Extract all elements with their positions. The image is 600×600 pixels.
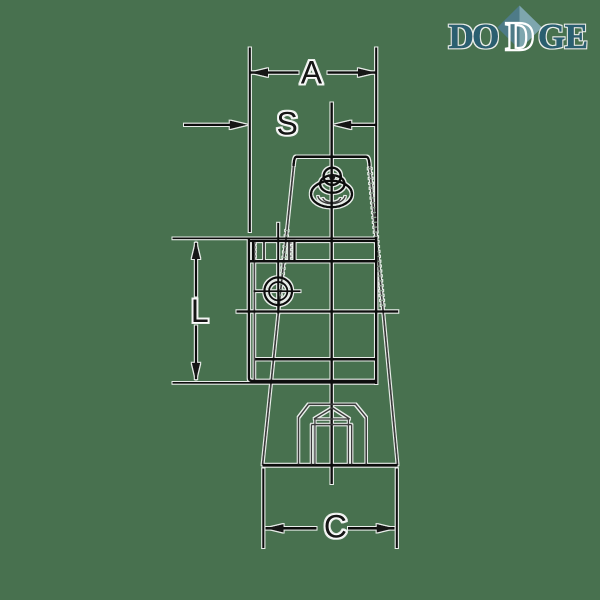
svg-text:G: G [538,17,565,56]
svg-text:C: C [324,509,347,545]
svg-text:S: S [277,105,298,141]
svg-text:A: A [301,55,323,91]
svg-text:L: L [191,293,209,329]
svg-text:E: E [565,17,588,56]
svg-text:O: O [472,17,499,56]
svg-text:D: D [505,13,535,59]
svg-text:D: D [449,17,474,56]
